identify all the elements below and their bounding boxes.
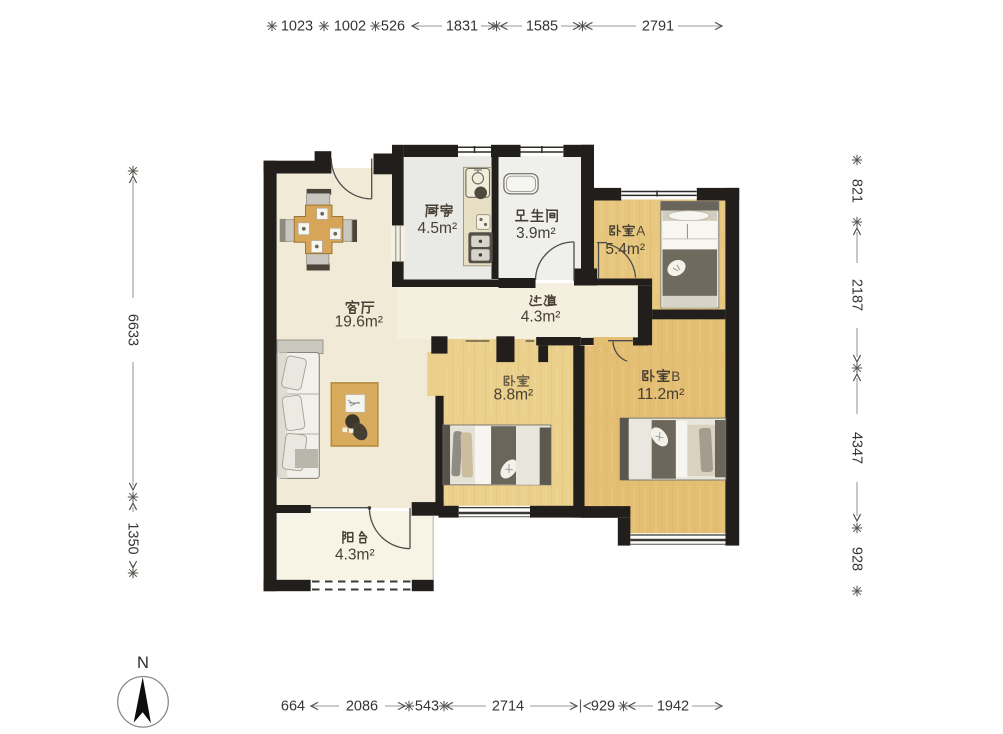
svg-text:2086: 2086: [346, 699, 378, 715]
svg-text:A: A: [636, 224, 645, 239]
svg-text:11.2m²: 11.2m²: [637, 386, 684, 403]
svg-text:4.5m²: 4.5m²: [417, 220, 457, 237]
svg-text:929: 929: [591, 699, 615, 715]
svg-text:664: 664: [281, 699, 305, 715]
svg-text:2187: 2187: [849, 279, 865, 311]
svg-text:B: B: [671, 369, 680, 384]
svg-text:5.4m²: 5.4m²: [605, 241, 645, 258]
svg-text:543: 543: [415, 699, 439, 715]
svg-text:4347: 4347: [849, 432, 865, 464]
svg-text:1942: 1942: [657, 699, 689, 715]
svg-text:N: N: [137, 654, 149, 672]
svg-text:821: 821: [849, 179, 865, 203]
svg-text:2791: 2791: [642, 19, 674, 35]
svg-text:4.3m²: 4.3m²: [521, 308, 561, 325]
svg-text:1350: 1350: [125, 522, 141, 554]
svg-text:19.6m²: 19.6m²: [335, 314, 383, 331]
svg-text:1585: 1585: [526, 19, 558, 35]
svg-text:1002: 1002: [334, 19, 366, 35]
svg-text:6633: 6633: [125, 314, 141, 346]
svg-text:4.3m²: 4.3m²: [335, 546, 375, 563]
svg-text:1023: 1023: [281, 19, 313, 35]
svg-text:1831: 1831: [446, 19, 478, 35]
svg-text:3.9m²: 3.9m²: [516, 225, 556, 242]
svg-text:526: 526: [381, 19, 405, 35]
svg-text:928: 928: [849, 547, 865, 571]
svg-text:8.8m²: 8.8m²: [494, 386, 534, 403]
svg-text:2714: 2714: [492, 699, 524, 715]
